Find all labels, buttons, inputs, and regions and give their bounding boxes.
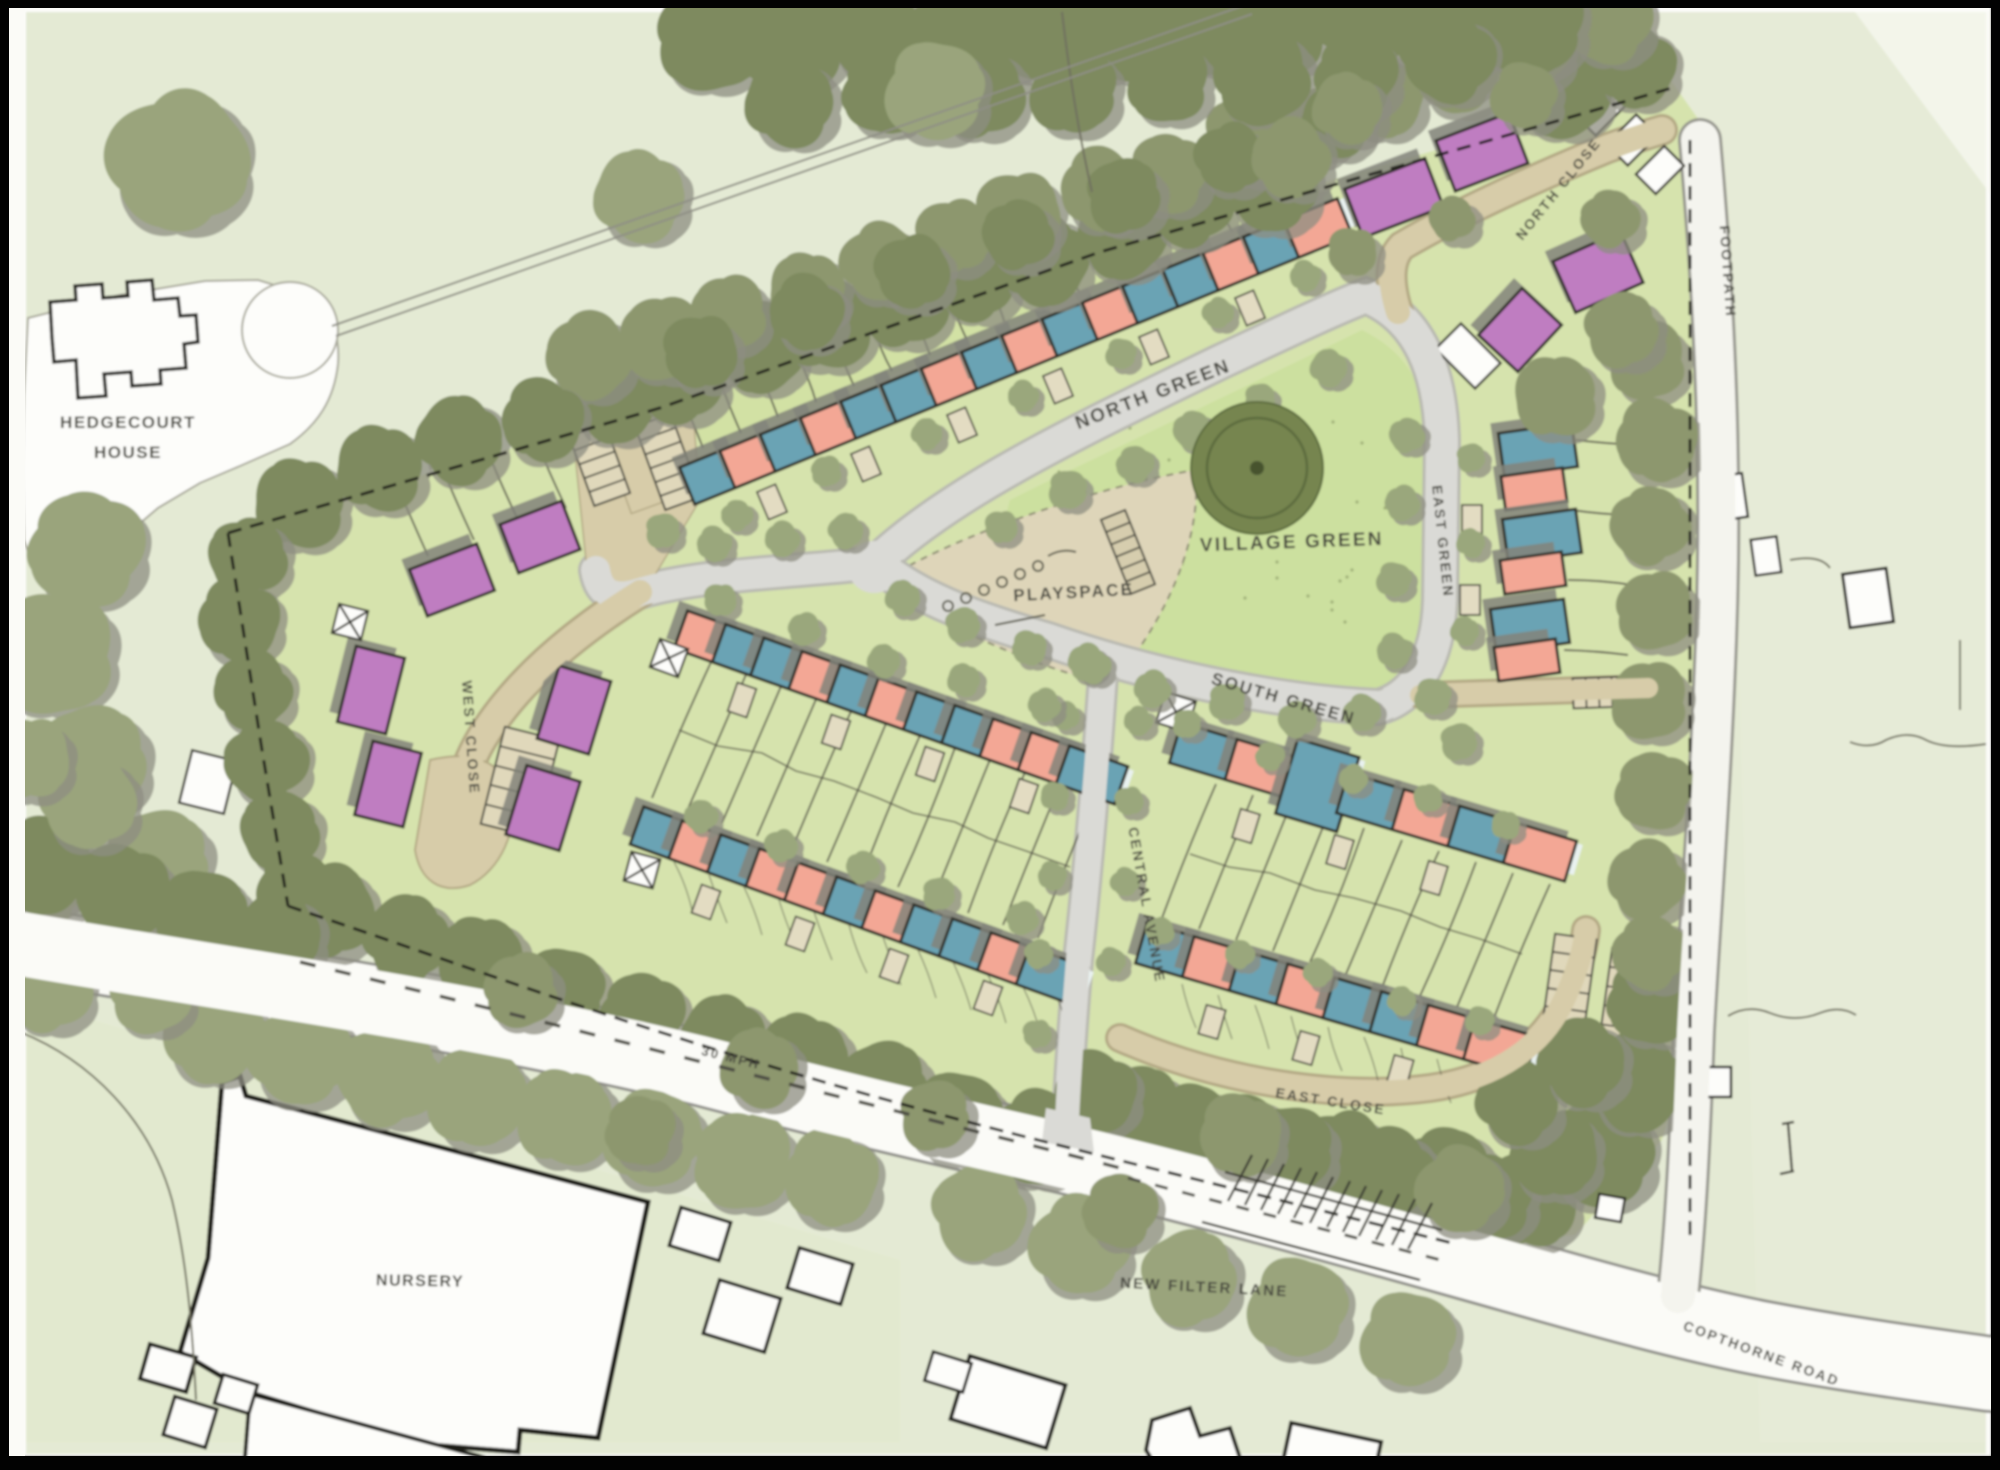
svg-text:HEDGECOURT: HEDGECOURT [60,413,196,432]
svg-text:NURSERY: NURSERY [376,1272,464,1291]
svg-text:HOUSE: HOUSE [94,443,162,462]
